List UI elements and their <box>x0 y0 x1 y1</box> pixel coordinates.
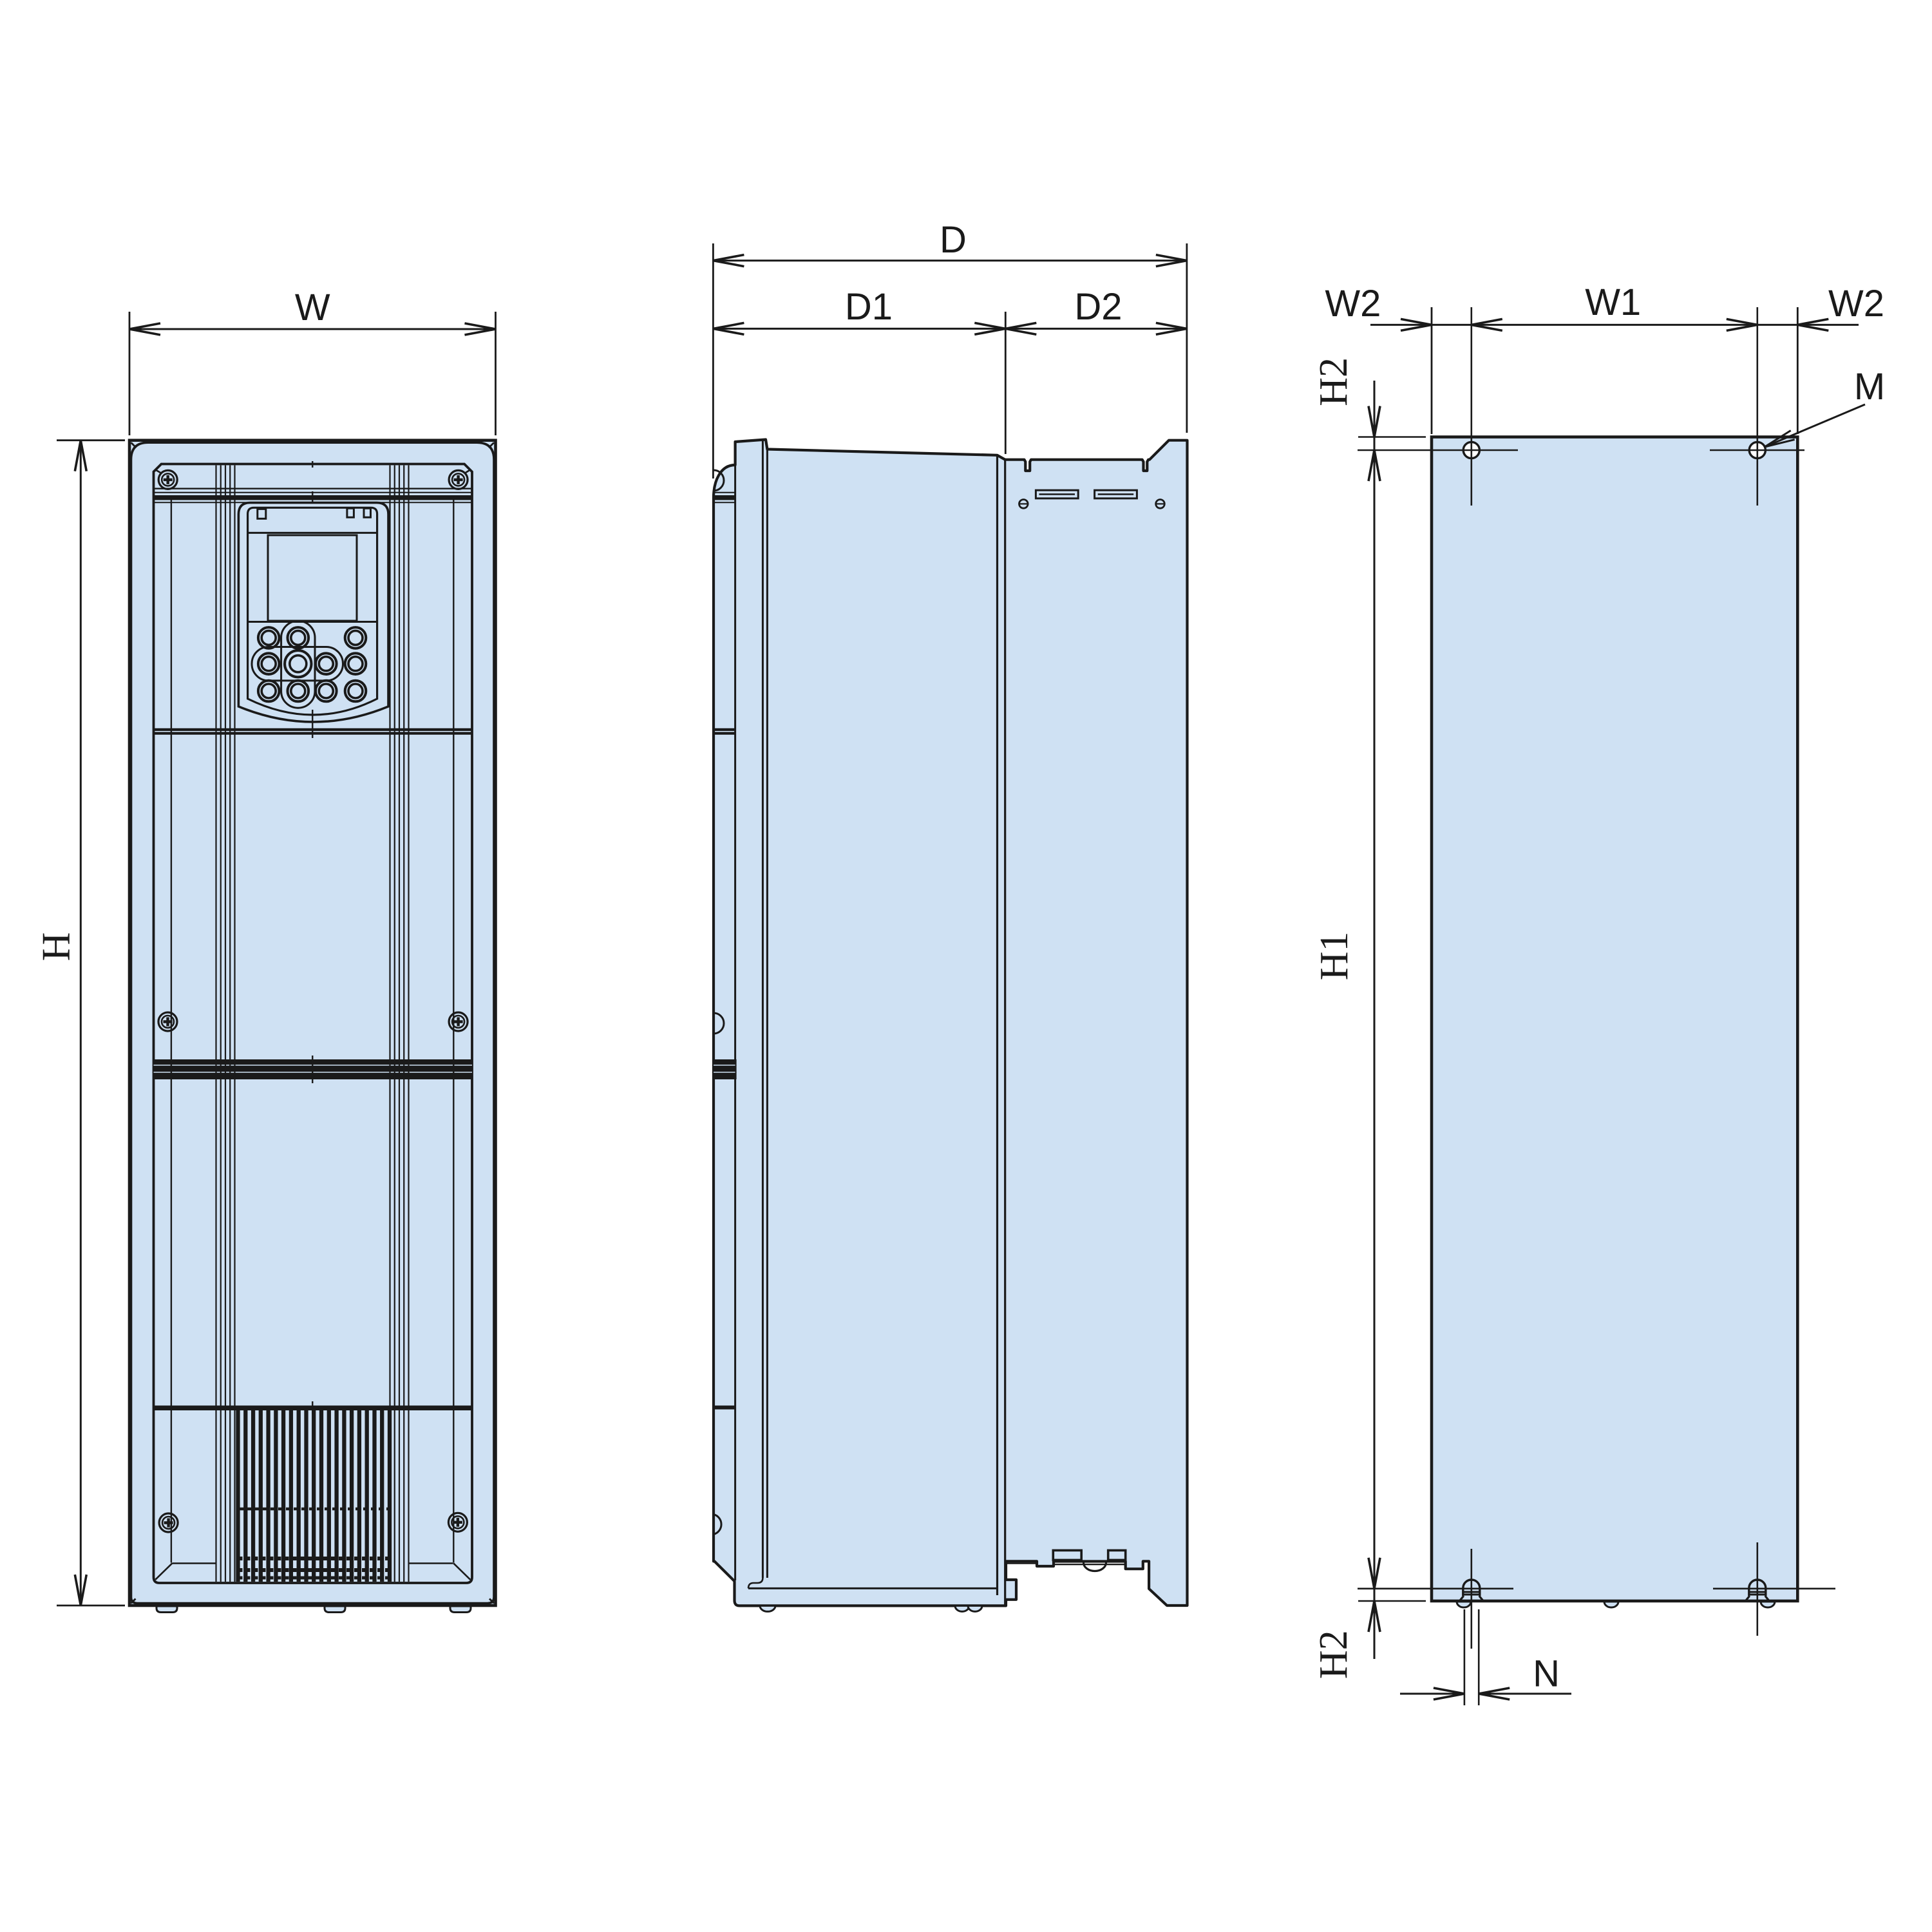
svg-text:D1: D1 <box>845 286 893 328</box>
svg-text:H1: H1 <box>1312 932 1356 981</box>
svg-text:N: N <box>1533 1653 1560 1695</box>
svg-text:W: W <box>295 287 330 328</box>
svg-text:H2: H2 <box>1312 1630 1356 1679</box>
svg-text:W2: W2 <box>1828 283 1884 325</box>
svg-text:D: D <box>940 219 967 261</box>
svg-text:H: H <box>34 933 78 961</box>
svg-text:D2: D2 <box>1074 286 1122 328</box>
svg-text:H2: H2 <box>1312 357 1356 406</box>
svg-text:W2: W2 <box>1325 283 1381 325</box>
svg-text:W1: W1 <box>1585 281 1641 323</box>
svg-text:M: M <box>1854 366 1885 408</box>
